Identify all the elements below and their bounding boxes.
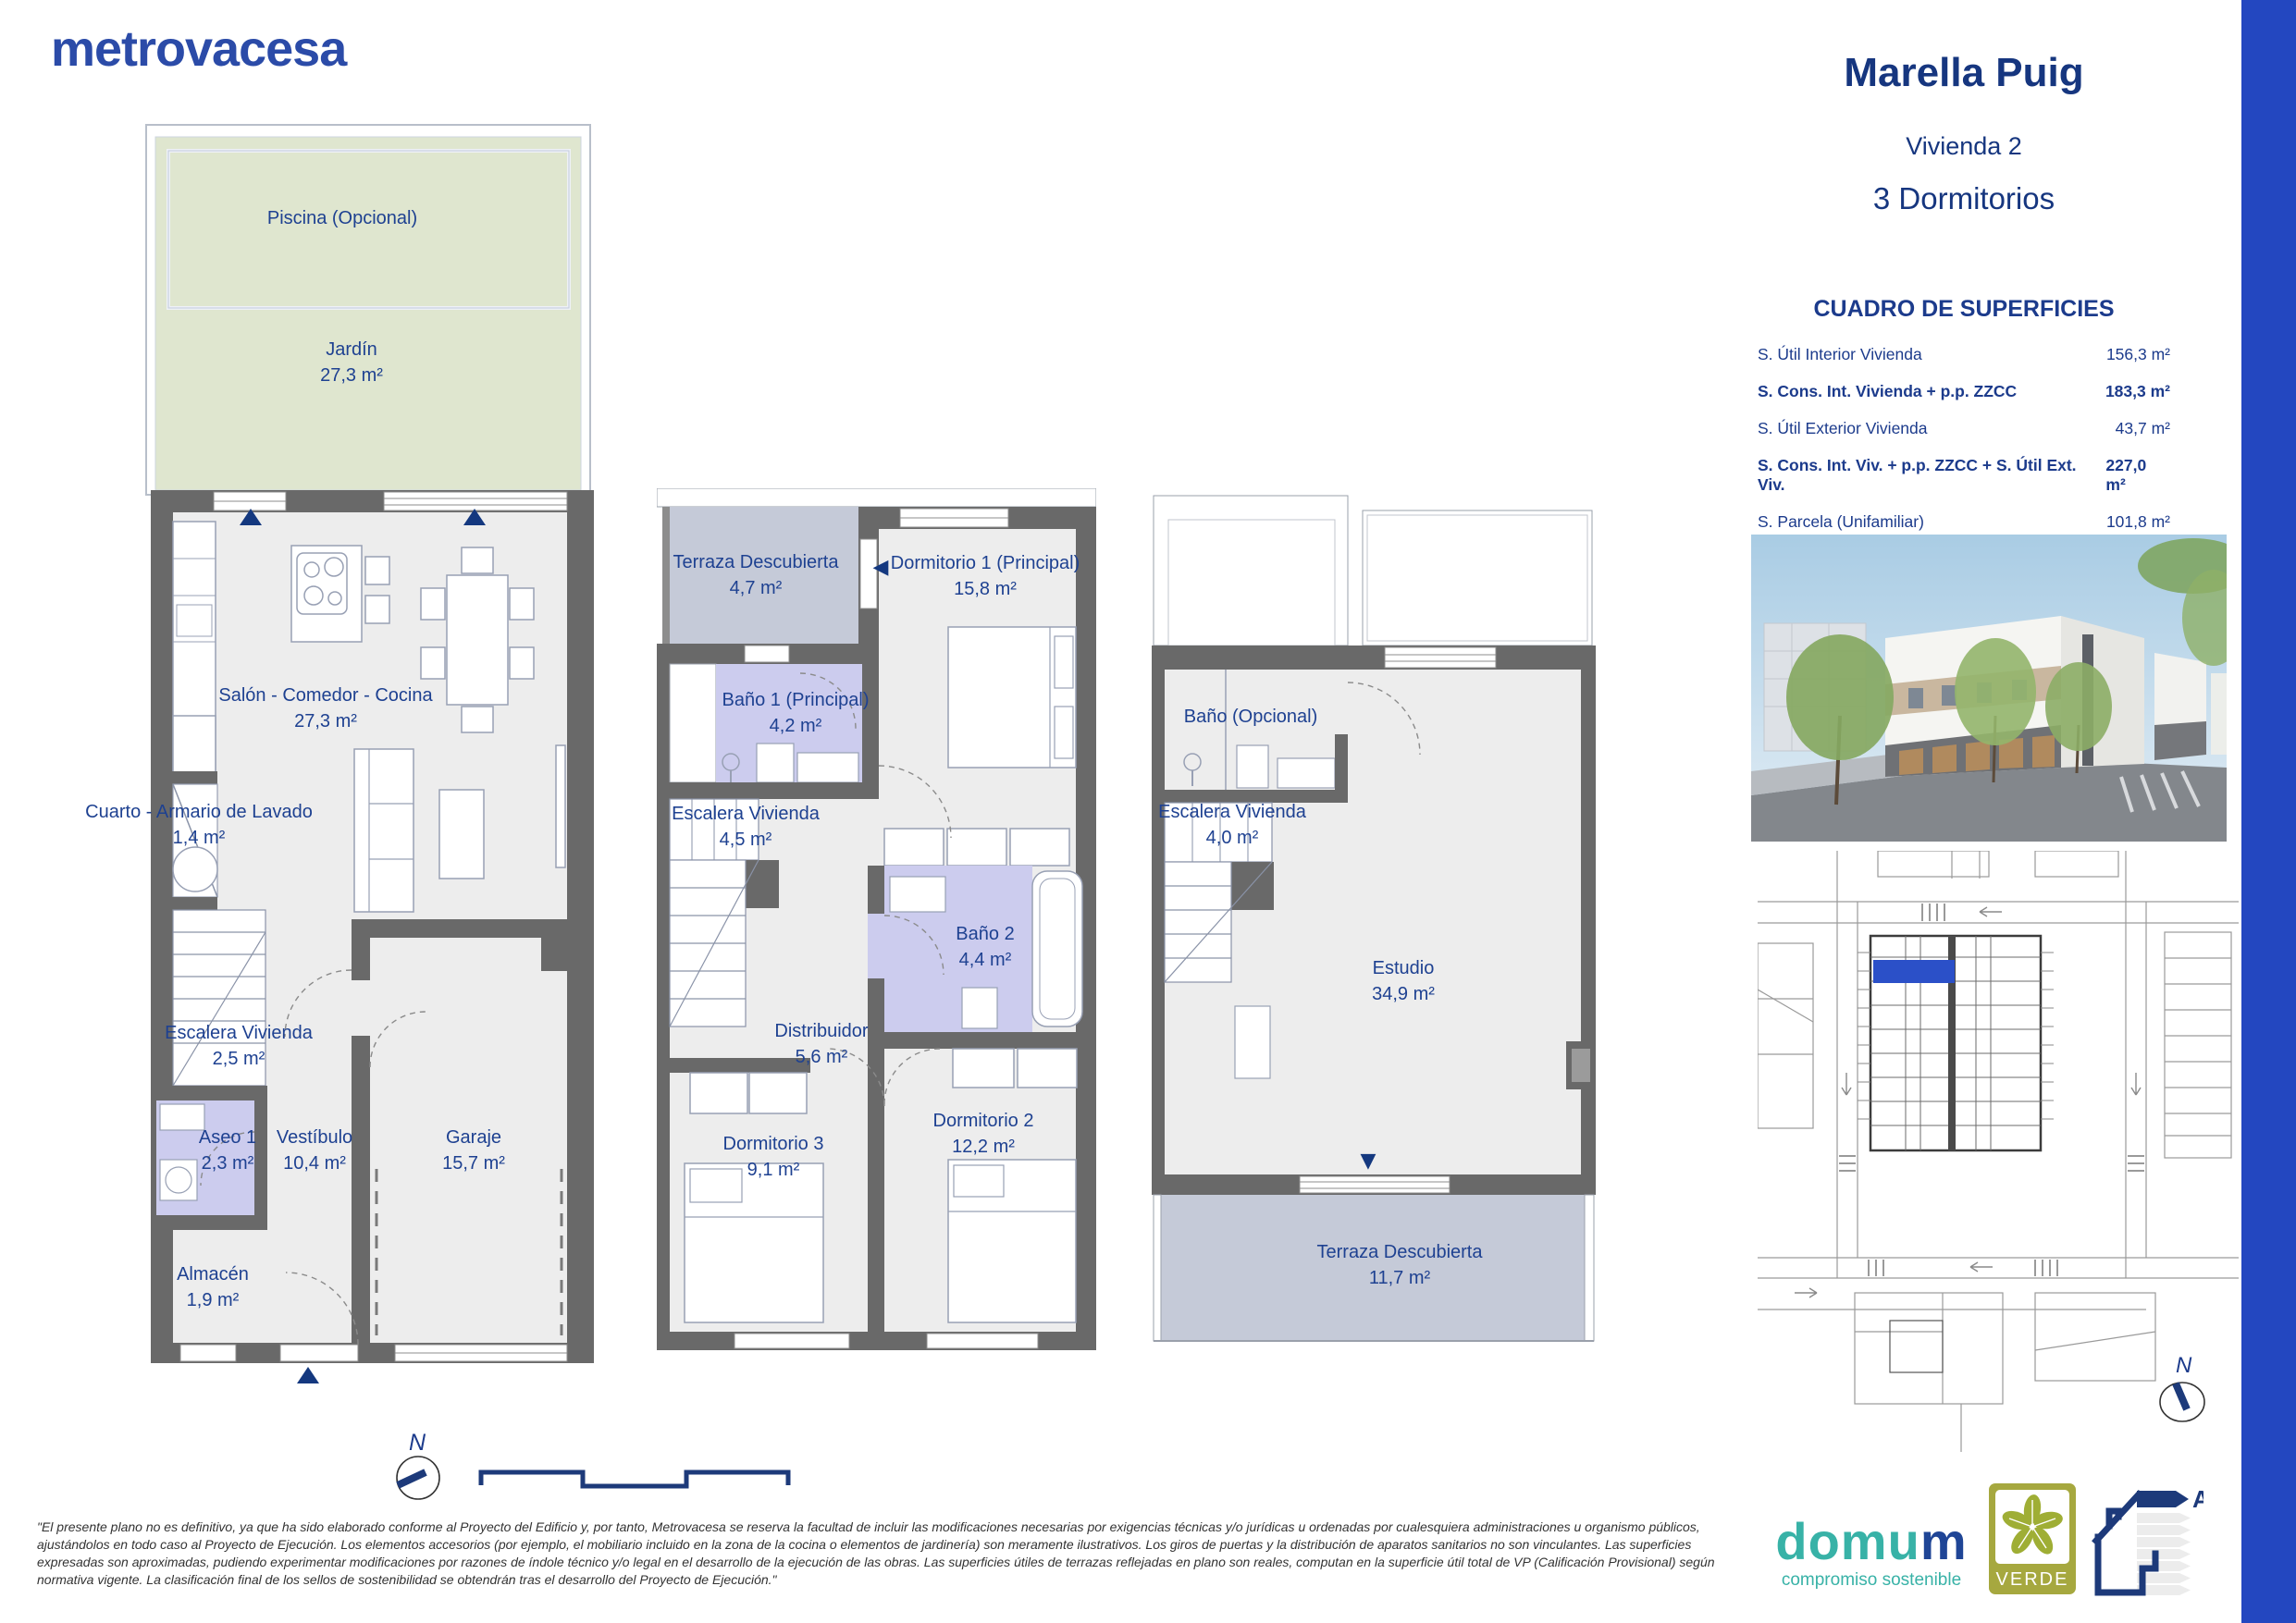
- room-label-aseo: Aseo 12,3 m²: [199, 1125, 256, 1176]
- surface-label: S. Cons. Int. Vivienda + p.p. ZZCC: [1758, 382, 2017, 401]
- room-label-bano1: Baño 1 (Principal)4,2 m²: [722, 687, 870, 739]
- table-row: S. Parcela (Unifamiliar) 101,8 m²: [1758, 512, 2170, 532]
- room-label-vestibulo: Vestíbulo10,4 m²: [277, 1125, 352, 1176]
- unit-subtitle: Vivienda 2: [1760, 132, 2167, 161]
- surface-value: 101,8 m²: [2106, 512, 2170, 532]
- surface-value: 183,3 m²: [2105, 382, 2170, 401]
- room-label-salon: Salón - Comedor - Cocina27,3 m²: [218, 682, 432, 734]
- table-row: S. Cons. Int. Viv. + p.p. ZZCC + S. Útil…: [1758, 456, 2170, 495]
- entrance-arrow-down-icon: ▼: [1361, 1151, 1376, 1172]
- surfaces-table: CUADRO DE SUPERFICIES S. Útil Interior V…: [1758, 296, 2170, 532]
- surfaces-title: CUADRO DE SUPERFICIES: [1758, 296, 2170, 323]
- page-title: Marella Puig: [1760, 51, 2167, 95]
- table-row: S. Útil Exterior Vivienda 43,7 m²: [1758, 419, 2170, 438]
- surface-value: 227,0 m²: [2105, 456, 2170, 495]
- svg-text:A: A: [2192, 1485, 2203, 1513]
- bedrooms-subtitle: 3 Dormitorios: [1760, 181, 2167, 216]
- room-label-terraza1: Terraza Descubierta4,7 m²: [673, 549, 839, 601]
- energy-rating-icon: A: [2089, 1478, 2203, 1598]
- exterior-render-image: [1751, 535, 2227, 842]
- room-label-distribuidor: Distribuidor5,6 m²: [774, 1018, 868, 1070]
- surface-label: S. Útil Exterior Vivienda: [1758, 419, 1928, 438]
- room-label-garaje: Garaje15,7 m²: [442, 1125, 505, 1176]
- floorplan-first: [657, 488, 1096, 1350]
- room-label-bano-opcional: Baño (Opcional): [1184, 704, 1318, 730]
- verde-badge: VERDE: [1989, 1483, 2076, 1594]
- room-label-jardin: Jardín27,3 m²: [320, 337, 383, 388]
- room-label-dorm2: Dormitorio 212,2 m²: [933, 1108, 1034, 1160]
- highlighted-unit: [1873, 960, 1955, 983]
- surface-label: S. Útil Interior Vivienda: [1758, 345, 1922, 364]
- room-label-escalera-p2: Escalera Vivienda4,0 m²: [1158, 799, 1306, 851]
- floorplan-ground: [143, 124, 594, 1392]
- metrovacesa-logo: metrovacesa: [51, 20, 346, 78]
- table-row: S. Útil Interior Vivienda 156,3 m²: [1758, 345, 2170, 364]
- rating-a-arrow: [2137, 1491, 2189, 1507]
- room-label-bano2: Baño 24,4 m²: [956, 921, 1014, 973]
- site-plan: N: [1758, 851, 2239, 1461]
- room-label-lavado: Cuarto - Armario de Lavado1,4 m²: [85, 799, 313, 851]
- room-label-escalera-p1: Escalera Vivienda4,5 m²: [672, 801, 820, 853]
- scale-bar: [481, 1472, 788, 1486]
- legal-disclaimer: "El presente plano no es definitivo, ya …: [37, 1518, 1730, 1589]
- table-row: S. Cons. Int. Vivienda + p.p. ZZCC 183,3…: [1758, 382, 2170, 401]
- room-label-dorm3: Dormitorio 39,1 m²: [723, 1131, 824, 1183]
- room-label-piscina: Piscina (Opcional): [267, 205, 417, 231]
- room-label-escalera-pb: Escalera Vivienda2,5 m²: [165, 1020, 313, 1072]
- page-accent-bar: [2241, 0, 2296, 1623]
- room-label-estudio: Estudio34,9 m²: [1372, 955, 1435, 1007]
- surface-value: 156,3 m²: [2106, 345, 2170, 364]
- room-label-terraza2: Terraza Descubierta11,7 m²: [1317, 1239, 1483, 1291]
- project-header: Marella Puig Vivienda 2 3 Dormitorios: [1760, 51, 2167, 216]
- site-north-compass: N: [2160, 1353, 2204, 1421]
- svg-text:VERDE: VERDE: [1996, 1569, 2069, 1590]
- domum-logo: domum compromiso sostenible: [1756, 1515, 1987, 1591]
- entrance-arrow-left-icon: ◀: [873, 558, 889, 578]
- north-compass: N: [379, 1424, 814, 1507]
- surface-value: 43,7 m²: [2116, 419, 2170, 438]
- floorplan-second: [1152, 488, 1596, 1350]
- room-label-almacen: Almacén1,9 m²: [177, 1261, 249, 1313]
- domum-tagline: compromiso sostenible: [1756, 1570, 1987, 1591]
- surface-label: S. Parcela (Unifamiliar): [1758, 512, 1924, 532]
- floorplan-sheet: metrovacesa Marella Puig Vivienda 2 3 Do…: [0, 0, 2296, 1623]
- svg-text:N: N: [2176, 1353, 2192, 1378]
- svg-text:N: N: [409, 1430, 426, 1456]
- room-label-dorm1: Dormitorio 1 (Principal)15,8 m²: [891, 550, 1080, 602]
- surface-label: S. Cons. Int. Viv. + p.p. ZZCC + S. Útil…: [1758, 456, 2105, 495]
